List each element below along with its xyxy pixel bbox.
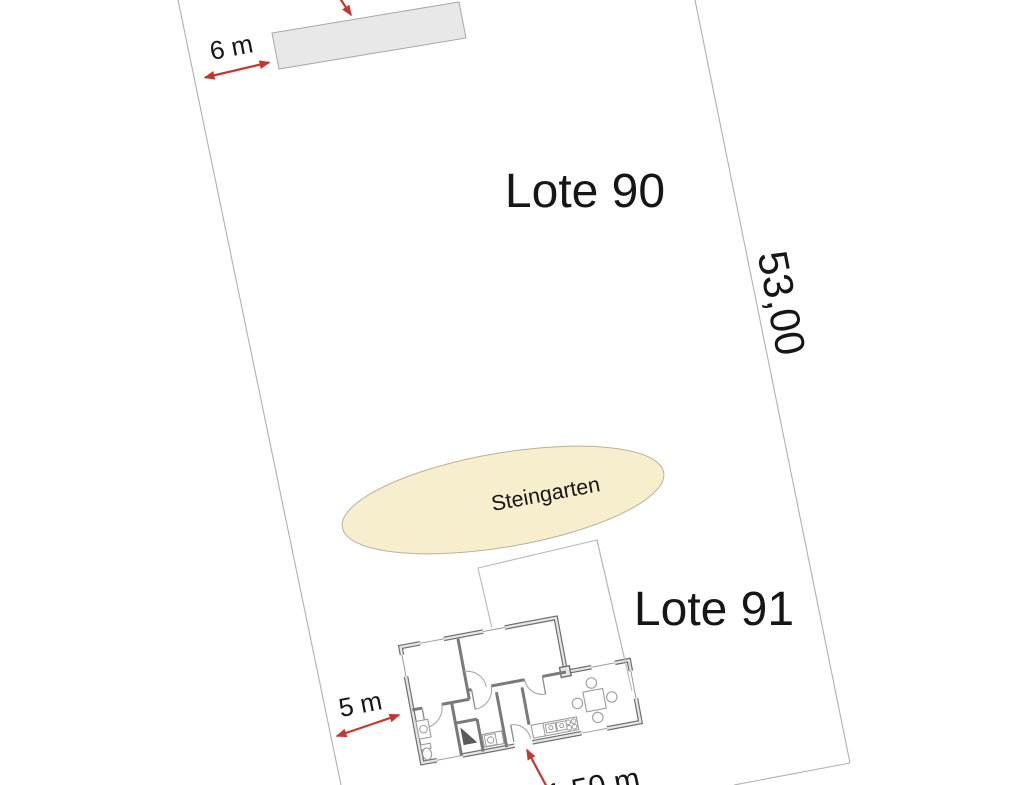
wall-segment [412, 708, 422, 710]
label-lote-91: Lote 91 [634, 583, 794, 636]
stove-burner [566, 720, 571, 725]
appliance-dial [487, 736, 494, 743]
lot-boundary-bottom-line [734, 763, 850, 785]
stove-burner [567, 725, 572, 730]
stove-burner [571, 719, 576, 724]
site-plan-canvas: Steingarten [0, 0, 1024, 785]
entry-door-opening [515, 742, 533, 745]
label-lote-90: Lote 90 [505, 165, 665, 218]
sink-drain [549, 725, 554, 730]
arrow-to-outbuilding [337, 0, 351, 15]
dining-table [583, 689, 606, 712]
lot-boundary-right-line [695, 0, 850, 763]
sink-drain [559, 723, 564, 728]
dimension-label-entry: 1,50 m [543, 760, 643, 785]
site-plan-svg: Steingarten [0, 0, 1024, 785]
dimension-label-6m: 6 m [207, 28, 255, 66]
dimension-label-5m: 5 m [336, 685, 384, 723]
outbuilding-rect [272, 2, 466, 69]
steingarten-area: Steingarten [334, 426, 671, 574]
lot-boundary-left-line [178, 0, 341, 785]
stove-burner [572, 724, 577, 729]
dimension-label-53: 53,00 [749, 247, 815, 359]
